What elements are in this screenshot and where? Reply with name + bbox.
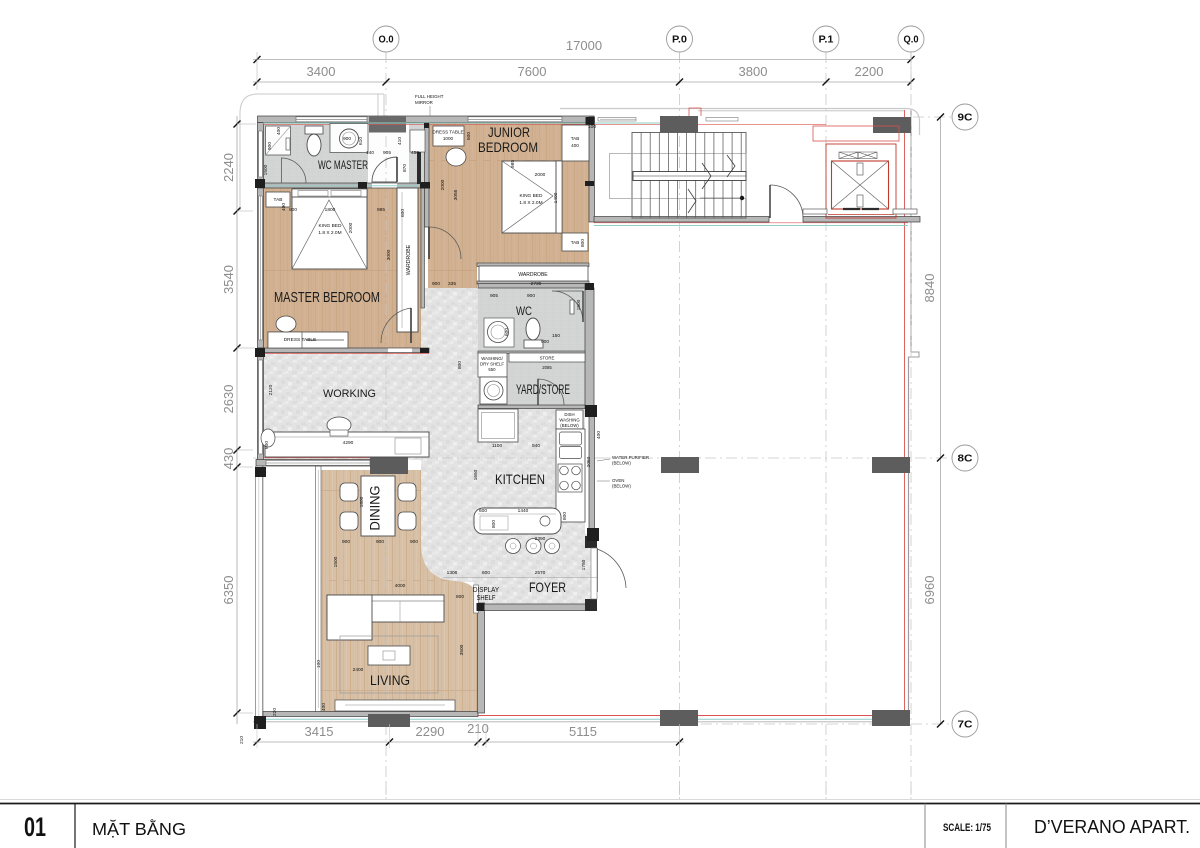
svg-text:1440: 1440 xyxy=(518,508,529,514)
svg-text:WARDROBE: WARDROBE xyxy=(406,244,412,275)
svg-text:9C: 9C xyxy=(958,113,973,124)
svg-text:335: 335 xyxy=(448,281,456,287)
svg-text:STORE: STORE xyxy=(540,356,555,361)
svg-text:8C: 8C xyxy=(958,454,973,465)
svg-text:3055: 3055 xyxy=(453,189,459,200)
svg-text:4000: 4000 xyxy=(395,583,406,589)
svg-text:OVEN: OVEN xyxy=(612,478,624,483)
svg-text:(BELOW): (BELOW) xyxy=(612,461,631,466)
svg-text:2000: 2000 xyxy=(440,179,446,190)
svg-text:985: 985 xyxy=(377,207,385,213)
svg-text:1750: 1750 xyxy=(581,559,587,570)
svg-text:220: 220 xyxy=(272,708,278,716)
svg-text:SHELF: SHELF xyxy=(477,593,496,602)
svg-text:DISH: DISH xyxy=(564,412,574,417)
svg-text:900: 900 xyxy=(342,539,350,545)
svg-text:7600: 7600 xyxy=(518,64,547,79)
svg-text:WATER PURIFIER: WATER PURIFIER xyxy=(612,455,649,460)
svg-text:2570: 2570 xyxy=(535,570,546,576)
svg-text:P.0: P.0 xyxy=(672,35,687,46)
svg-text:D’VERANO APART.: D’VERANO APART. xyxy=(1034,816,1190,837)
svg-text:1.8 X 2.0M: 1.8 X 2.0M xyxy=(318,230,341,236)
svg-text:5115: 5115 xyxy=(569,724,597,739)
svg-text:600: 600 xyxy=(482,570,490,576)
svg-text:1.8 X 2.0M: 1.8 X 2.0M xyxy=(519,200,542,206)
svg-text:(BELOW): (BELOW) xyxy=(612,484,631,489)
svg-text:SCALE: 1/75: SCALE: 1/75 xyxy=(943,822,991,834)
svg-text:3415: 3415 xyxy=(305,724,334,739)
svg-text:870: 870 xyxy=(402,164,408,172)
svg-text:985: 985 xyxy=(510,160,516,168)
svg-text:600: 600 xyxy=(479,508,487,514)
svg-text:1800: 1800 xyxy=(359,496,365,507)
svg-text:DRY SHELF: DRY SHELF xyxy=(480,362,504,367)
svg-text:1000: 1000 xyxy=(443,136,454,141)
svg-text:600: 600 xyxy=(264,441,270,449)
svg-text:210: 210 xyxy=(239,736,245,744)
svg-text:3500: 3500 xyxy=(459,644,465,655)
svg-text:3400: 3400 xyxy=(307,64,336,79)
svg-text:MASTER BEDROOM: MASTER BEDROOM xyxy=(274,289,380,306)
svg-text:8840: 8840 xyxy=(922,274,937,303)
svg-text:KING BED: KING BED xyxy=(520,193,543,199)
svg-text:550: 550 xyxy=(488,367,496,372)
svg-text:2200: 2200 xyxy=(855,64,884,79)
svg-text:TAB: TAB xyxy=(571,240,580,245)
svg-text:100: 100 xyxy=(316,660,322,668)
svg-text:140: 140 xyxy=(366,150,374,156)
svg-text:6960: 6960 xyxy=(922,576,937,605)
svg-text:O.0: O.0 xyxy=(379,35,394,46)
svg-text:2085: 2085 xyxy=(542,365,552,370)
svg-text:TAB: TAB xyxy=(571,136,580,141)
svg-text:2630: 2630 xyxy=(221,385,236,414)
svg-text:800: 800 xyxy=(562,512,568,520)
svg-text:905: 905 xyxy=(490,293,498,299)
svg-text:WASHING: WASHING xyxy=(559,418,580,423)
svg-text:600: 600 xyxy=(400,209,406,217)
svg-text:P.1: P.1 xyxy=(819,35,834,46)
svg-text:100: 100 xyxy=(588,124,596,130)
svg-text:400: 400 xyxy=(276,127,282,135)
svg-text:600: 600 xyxy=(504,328,510,336)
svg-text:1500: 1500 xyxy=(576,299,582,310)
svg-text:FULL HEIGHT: FULL HEIGHT xyxy=(415,94,444,99)
svg-text:900: 900 xyxy=(376,539,384,545)
svg-text:LIVING: LIVING xyxy=(370,673,410,688)
svg-text:800: 800 xyxy=(491,520,497,528)
svg-text:6350: 6350 xyxy=(221,576,236,605)
svg-text:610: 610 xyxy=(358,137,364,145)
svg-text:800: 800 xyxy=(289,207,297,213)
svg-text:3800: 3800 xyxy=(739,64,768,79)
svg-text:KITCHEN: KITCHEN xyxy=(495,471,545,487)
svg-text:940: 940 xyxy=(532,443,540,449)
svg-text:2050: 2050 xyxy=(586,456,592,467)
svg-text:2400: 2400 xyxy=(353,667,364,673)
svg-text:410: 410 xyxy=(397,137,403,145)
svg-text:WC MASTER: WC MASTER xyxy=(318,158,368,172)
svg-text:900: 900 xyxy=(343,136,351,142)
svg-text:905: 905 xyxy=(383,150,391,156)
svg-text:800: 800 xyxy=(580,239,586,247)
svg-text:400: 400 xyxy=(596,431,602,439)
svg-text:FOYER: FOYER xyxy=(529,579,566,595)
svg-text:01: 01 xyxy=(24,812,46,842)
svg-text:1650: 1650 xyxy=(473,469,479,480)
svg-text:7C: 7C xyxy=(958,720,973,731)
svg-text:TAB: TAB xyxy=(274,197,283,203)
svg-text:17000: 17000 xyxy=(566,38,602,53)
svg-text:800: 800 xyxy=(457,361,463,369)
svg-text:WARDROBE: WARDROBE xyxy=(518,272,548,278)
svg-text:400: 400 xyxy=(571,143,579,148)
svg-text:1500: 1500 xyxy=(333,556,339,567)
svg-text:DINING: DINING xyxy=(367,486,383,531)
svg-text:4290: 4290 xyxy=(343,440,354,446)
svg-text:900: 900 xyxy=(527,293,535,299)
svg-text:400: 400 xyxy=(321,703,327,711)
svg-text:1800: 1800 xyxy=(325,207,336,213)
svg-text:JUNIOR: JUNIOR xyxy=(488,124,530,140)
svg-text:2240: 2240 xyxy=(221,153,236,182)
svg-text:2730: 2730 xyxy=(531,281,542,287)
svg-text:800: 800 xyxy=(456,594,464,600)
svg-text:MIRROR: MIRROR xyxy=(415,100,433,105)
svg-text:3000: 3000 xyxy=(386,249,392,260)
svg-text:BEDROOM: BEDROOM xyxy=(478,139,538,155)
svg-text:1306: 1306 xyxy=(447,570,458,576)
svg-text:900: 900 xyxy=(410,539,418,545)
svg-text:450: 450 xyxy=(411,150,419,156)
svg-text:1400: 1400 xyxy=(553,192,559,203)
svg-text:WASHING/: WASHING/ xyxy=(481,356,503,361)
svg-text:600: 600 xyxy=(466,132,472,140)
svg-text:2000: 2000 xyxy=(348,222,354,233)
svg-text:KING BED: KING BED xyxy=(319,223,342,229)
svg-text:150: 150 xyxy=(552,333,560,339)
svg-text:Q.0: Q.0 xyxy=(904,35,919,46)
svg-text:430: 430 xyxy=(221,448,236,470)
svg-text:DRESS TABLE: DRESS TABLE xyxy=(432,130,463,135)
svg-text:900: 900 xyxy=(267,142,273,150)
svg-text:WC: WC xyxy=(516,304,532,318)
svg-text:900: 900 xyxy=(541,339,549,345)
svg-text:(BELOW): (BELOW) xyxy=(560,423,579,428)
svg-text:400: 400 xyxy=(281,203,287,211)
svg-text:1500: 1500 xyxy=(263,164,269,175)
svg-text:2000: 2000 xyxy=(535,172,546,178)
svg-text:2390: 2390 xyxy=(535,536,546,542)
svg-text:DRESS TABLE: DRESS TABLE xyxy=(284,337,317,343)
svg-text:YARD/STORE: YARD/STORE xyxy=(516,382,570,397)
svg-text:3540: 3540 xyxy=(221,265,236,294)
svg-text:1100: 1100 xyxy=(492,443,503,449)
svg-text:2290: 2290 xyxy=(416,724,445,739)
svg-text:WORKING: WORKING xyxy=(323,388,376,400)
svg-text:MẶT BẰNG: MẶT BẰNG xyxy=(92,818,186,839)
svg-text:900: 900 xyxy=(432,281,440,287)
svg-text:2120: 2120 xyxy=(268,384,274,395)
